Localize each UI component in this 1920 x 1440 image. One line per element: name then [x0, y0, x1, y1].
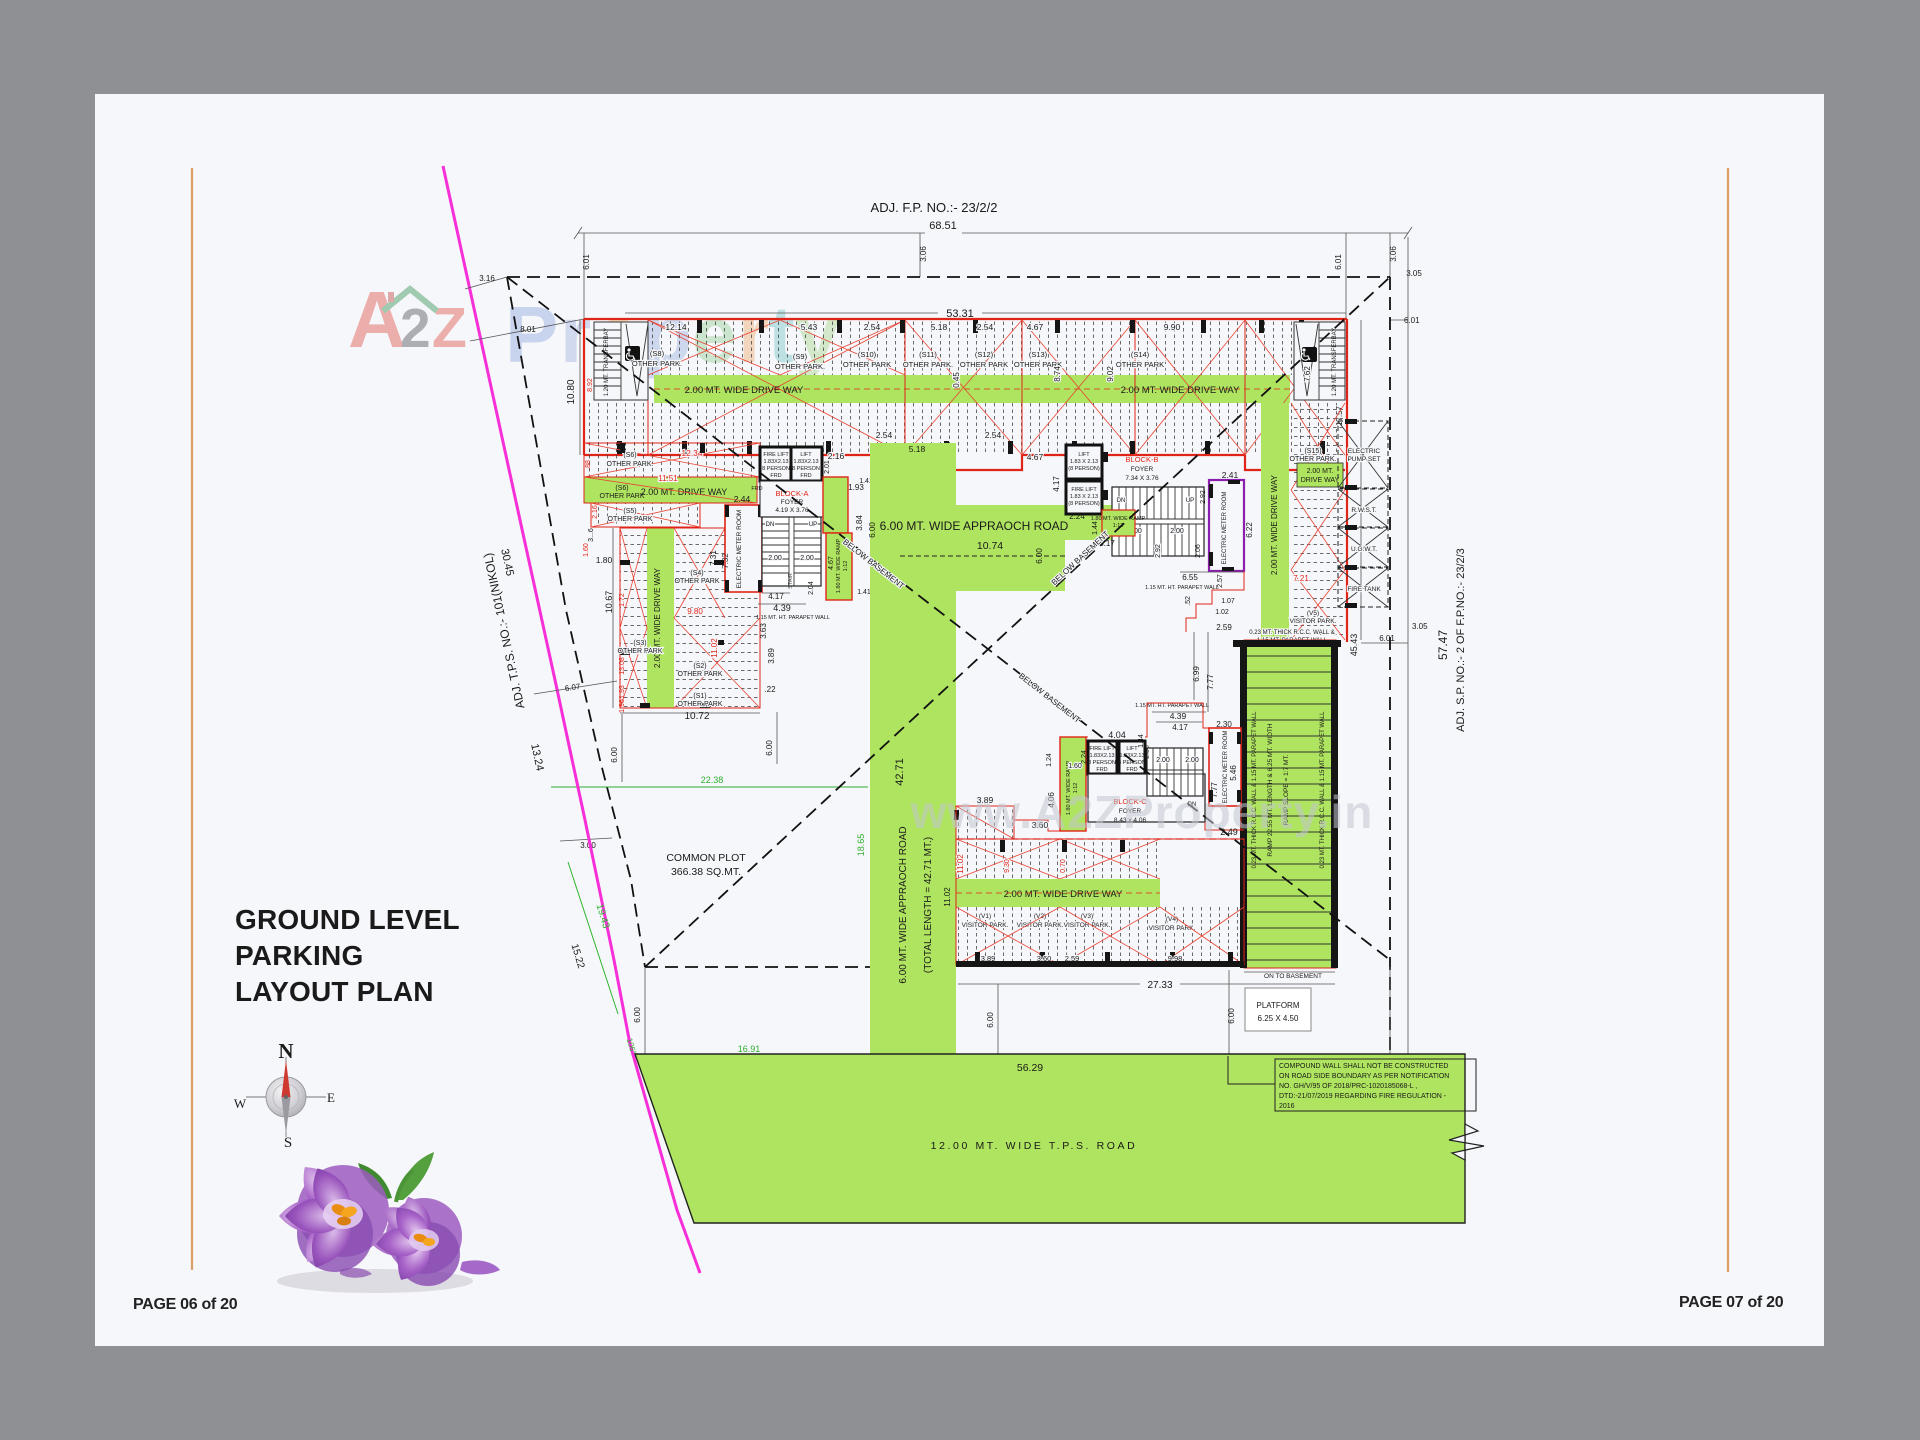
svg-text:9.02: 9.02: [1106, 366, 1115, 382]
svg-text:56.29: 56.29: [1017, 1062, 1043, 1074]
svg-text:VISITOR PARK.: VISITOR PARK.: [1017, 922, 1064, 929]
svg-text:3.05: 3.05: [1406, 269, 1422, 278]
svg-text:3.06: 3.06: [919, 246, 928, 262]
svg-text:LIFT: LIFT: [1078, 452, 1090, 458]
svg-text:9.30: 9.30: [1004, 859, 1011, 873]
svg-text:3.16: 3.16: [479, 274, 495, 283]
svg-text:6.00: 6.00: [986, 1012, 995, 1028]
svg-text:6.00: 6.00: [1035, 548, 1044, 564]
svg-text:(V2): (V2): [1034, 913, 1046, 920]
svg-text:8.92: 8.92: [587, 378, 594, 392]
svg-text:GROUND LEVEL: GROUND LEVEL: [235, 904, 460, 935]
svg-text:2.00: 2.00: [1185, 757, 1199, 764]
svg-text:1.83X2.13: 1.83X2.13: [793, 459, 818, 465]
svg-text:5.46: 5.46: [1229, 765, 1238, 781]
svg-text:2.16: 2.16: [592, 505, 599, 519]
svg-text:8.01: 8.01: [520, 325, 536, 334]
svg-text:1.15 MT. HT. PARAPET WALL: 1.15 MT. HT. PARAPET WALL: [1135, 703, 1209, 709]
svg-text:(S9): (S9): [793, 352, 808, 361]
svg-text:2.54: 2.54: [985, 430, 1002, 440]
svg-text:www.A2ZProperty.in: www.A2ZProperty.in: [910, 786, 1374, 838]
svg-text:FRD: FRD: [770, 473, 781, 479]
svg-text:NO. GH/V/95 OF 2018/PRC-102018: NO. GH/V/95 OF 2018/PRC-1020185068-L ,: [1279, 1083, 1417, 1090]
svg-text:4.67: 4.67: [828, 556, 835, 570]
svg-text:2.06: 2.06: [1195, 544, 1202, 558]
svg-text:(S4): (S4): [690, 570, 703, 577]
svg-text:3.05: 3.05: [1412, 622, 1428, 631]
svg-text:2.92: 2.92: [1155, 544, 1162, 558]
svg-text:FOYER: FOYER: [781, 499, 804, 506]
svg-text:6.00 MT. WIDE APPRAOCH ROAD: 6.00 MT. WIDE APPRAOCH ROAD: [880, 519, 1069, 533]
svg-text:6.00: 6.00: [633, 1007, 642, 1023]
svg-text:1.83X2.13: 1.83X2.13: [1089, 753, 1114, 759]
svg-text:2.59: 2.59: [1216, 623, 1232, 632]
svg-text:4.04: 4.04: [1108, 730, 1126, 740]
svg-text:1.72: 1.72: [619, 593, 626, 607]
svg-text:1.02: 1.02: [1215, 609, 1229, 616]
svg-text:FRD: FRD: [1126, 767, 1137, 773]
svg-text:1.83X2.13: 1.83X2.13: [763, 459, 788, 465]
svg-text:1.15 MT. HT. PARAPET WALL: 1.15 MT. HT. PARAPET WALL: [756, 615, 830, 621]
svg-text:0.23 MT. THICK R.C.C. WALL &: 0.23 MT. THICK R.C.C. WALL &: [1249, 630, 1334, 636]
svg-text:4.17: 4.17: [1172, 723, 1188, 732]
svg-text:68.51: 68.51: [929, 220, 957, 232]
svg-text:5.18: 5.18: [931, 322, 948, 332]
svg-text:8 PERSON: 8 PERSON: [762, 466, 790, 472]
svg-text:OTHER PARK: OTHER PARK: [678, 671, 723, 678]
svg-text:12.34: 12.34: [681, 448, 703, 458]
svg-text:6.01: 6.01: [1379, 634, 1395, 643]
svg-text:S: S: [284, 1135, 292, 1151]
svg-text:7.21: 7.21: [1293, 574, 1309, 583]
svg-text:OTHER PARK.: OTHER PARK.: [903, 360, 953, 369]
svg-text:2.00: 2.00: [800, 555, 814, 562]
svg-text:6.55: 6.55: [1182, 573, 1198, 582]
svg-text:2.06: 2.06: [1144, 745, 1151, 759]
svg-text:8 PERSON: 8 PERSON: [1088, 760, 1116, 766]
svg-text:(S3): (S3): [633, 640, 646, 647]
svg-text:1.83 X 2.13: 1.83 X 2.13: [1070, 459, 1098, 465]
svg-text:6.22: 6.22: [1245, 522, 1254, 538]
svg-text:16.91: 16.91: [738, 1044, 761, 1054]
svg-text:ELECTRIC METER ROOM: ELECTRIC METER ROOM: [1222, 492, 1228, 565]
svg-text:2.54: 2.54: [864, 322, 881, 332]
svg-text:10.74: 10.74: [977, 540, 1003, 552]
svg-text:1.20 MT. TRANSFERBAY: 1.20 MT. TRANSFERBAY: [1332, 328, 1338, 396]
svg-text:DTD:-21/07/2019 REGARDING FIRE: DTD:-21/07/2019 REGARDING FIRE REGULATIO…: [1279, 1093, 1447, 1100]
svg-text:(S6): (S6): [615, 485, 628, 492]
svg-text:3.06: 3.06: [1389, 246, 1398, 262]
svg-text:1.80 MT. WIDE RAMP: 1.80 MT. WIDE RAMP: [1091, 516, 1146, 522]
svg-text:1.83X2.13: 1.83X2.13: [1119, 753, 1144, 759]
svg-text:(8 PERSON): (8 PERSON): [1068, 501, 1100, 507]
svg-text:2.00 MT. WIDE DRIVE WAY: 2.00 MT. WIDE DRIVE WAY: [1121, 385, 1240, 396]
svg-text:1:12: 1:12: [843, 561, 849, 572]
svg-text:2.01: 2.01: [824, 460, 831, 474]
svg-text:OTHER PARK: OTHER PARK: [600, 493, 645, 500]
svg-text:1.24: 1.24: [1046, 753, 1053, 767]
svg-text:R.W.S.T.: R.W.S.T.: [1351, 507, 1376, 514]
svg-text:ADJ. S.P. NO.:- 2 OF F.P.NO.:-: ADJ. S.P. NO.:- 2 OF F.P.NO.:- 23/2/3: [1455, 548, 1467, 732]
svg-text:9.80: 9.80: [687, 607, 703, 616]
svg-text:VISITOR PARK.: VISITOR PARK.: [1290, 618, 1337, 625]
svg-text:10.80: 10.80: [566, 379, 577, 404]
svg-text:(S8): (S8): [650, 349, 665, 358]
svg-text:PARKING: PARKING: [235, 940, 363, 971]
svg-text:ELECTRIC: ELECTRIC: [1348, 448, 1380, 455]
svg-text:Z: Z: [432, 296, 467, 360]
svg-text:8.74: 8.74: [1053, 366, 1062, 382]
svg-text:2.00 MT. WIDE DRIVE WAY: 2.00 MT. WIDE DRIVE WAY: [1270, 474, 1279, 575]
svg-text:DN: DN: [766, 522, 775, 528]
svg-text:FRD: FRD: [1096, 767, 1107, 773]
svg-text:(S2): (S2): [693, 663, 706, 670]
svg-text:1.15 MT. HT. PARAPET WALL: 1.15 MT. HT. PARAPET WALL: [1145, 585, 1219, 591]
svg-text:4.39: 4.39: [1170, 711, 1187, 721]
svg-text:(S14): (S14): [1131, 350, 1150, 359]
svg-text:2016: 2016: [1279, 1103, 1295, 1110]
svg-text:2.04: 2.04: [808, 581, 815, 595]
svg-text:.52: .52: [1185, 596, 1192, 606]
svg-text:11.02: 11.02: [710, 638, 719, 658]
svg-text:2.57: 2.57: [1217, 574, 1224, 588]
svg-text:57.47: 57.47: [1436, 630, 1450, 660]
svg-text:(V1): (V1): [979, 913, 991, 920]
svg-text:11.02: 11.02: [943, 887, 952, 907]
svg-text:OTHER PARK: OTHER PARK: [675, 578, 720, 585]
svg-text:(V5): (V5): [1307, 610, 1319, 617]
svg-text:(S5): (S5): [623, 508, 636, 515]
svg-text:1.07: 1.07: [1221, 598, 1235, 605]
svg-text:5.18: 5.18: [909, 444, 926, 454]
svg-text:7.32: 7.32: [721, 553, 730, 569]
svg-text:1.41: 1.41: [857, 589, 871, 596]
svg-text:366.38 SQ.MT.: 366.38 SQ.MT.: [671, 866, 741, 878]
svg-text:FRD: FRD: [751, 486, 762, 492]
svg-text:3.63: 3.63: [759, 623, 768, 639]
svg-text:4.17: 4.17: [768, 592, 784, 601]
svg-text:1.83 X 2.13: 1.83 X 2.13: [1070, 494, 1098, 500]
svg-text:4.39: 4.39: [773, 603, 791, 613]
svg-text:6.01: 6.01: [1334, 254, 1343, 270]
svg-text:PLATFORM: PLATFORM: [1257, 1001, 1300, 1010]
svg-text:DN: DN: [1117, 498, 1126, 504]
svg-text:OTHER PARK: OTHER PARK: [608, 516, 653, 523]
svg-text:(V3): (V3): [1081, 913, 1093, 920]
svg-text:BLOCK-B: BLOCK-B: [1126, 455, 1159, 464]
svg-text:3.84: 3.84: [855, 515, 864, 531]
svg-text:COMPOUND WALL SHALL NOT BE CON: COMPOUND WALL SHALL NOT BE CONSTRUCTED: [1279, 1063, 1448, 1070]
svg-text:18.65: 18.65: [856, 834, 866, 857]
svg-text:.88: .88: [585, 460, 592, 470]
svg-text:2.54: 2.54: [977, 322, 994, 332]
svg-text:6.01: 6.01: [1404, 316, 1420, 325]
svg-text:2.00: 2.00: [1170, 528, 1184, 535]
svg-text:ADJ. F.P. NO.:- 23/2/2: ADJ. F.P. NO.:- 23/2/2: [871, 200, 998, 215]
svg-text:2.00: 2.00: [768, 555, 782, 562]
svg-text:10.67: 10.67: [604, 591, 614, 614]
svg-text:(V4): (V4): [1166, 916, 1178, 923]
svg-text:6.00 MT. WIDE APPRAOCH ROAD: 6.00 MT. WIDE APPRAOCH ROAD: [898, 826, 909, 983]
svg-text:7.77: 7.77: [1206, 674, 1215, 690]
svg-text:6.01: 6.01: [582, 254, 591, 270]
svg-text:FIRE LIFT: FIRE LIFT: [1071, 487, 1097, 493]
svg-text:r: r: [560, 290, 591, 379]
svg-text:OTHER PARK.: OTHER PARK.: [1290, 456, 1337, 463]
svg-text:(S12): (S12): [975, 350, 994, 359]
svg-text:LIFT: LIFT: [800, 452, 812, 458]
svg-text:1.60: 1.60: [1068, 763, 1082, 770]
svg-text:6.25 X 4.50: 6.25 X 4.50: [1258, 1014, 1299, 1023]
svg-text:1.80 MT. WIDE RAMP: 1.80 MT. WIDE RAMP: [836, 538, 842, 593]
svg-text:7.62: 7.62: [1303, 366, 1312, 382]
svg-text:FOYER: FOYER: [1131, 466, 1154, 473]
svg-text:4.67: 4.67: [1027, 452, 1044, 462]
svg-text:ON TO BASEMENT: ON TO BASEMENT: [1264, 973, 1322, 980]
svg-text:8 PERSON: 8 PERSON: [792, 466, 820, 472]
svg-text:2.54: 2.54: [876, 430, 893, 440]
svg-text:4.67: 4.67: [1027, 322, 1044, 332]
svg-text:1.80: 1.80: [596, 555, 613, 565]
svg-text:1.96: 1.96: [619, 699, 626, 713]
svg-text:OTHER PARK: OTHER PARK: [678, 701, 723, 708]
svg-text:(S10): (S10): [858, 350, 877, 359]
svg-text:2.44: 2.44: [734, 494, 751, 504]
svg-text:ON ROAD SIDE BOUNDARY AS PER N: ON ROAD SIDE BOUNDARY AS PER NOTIFICATIO…: [1279, 1073, 1449, 1080]
svg-text:3...6: 3...6: [588, 528, 595, 542]
svg-text:VISITOR PARK.: VISITOR PARK.: [1149, 925, 1196, 932]
svg-text:6.99: 6.99: [1192, 666, 1201, 682]
svg-text:0.45: 0.45: [952, 372, 961, 388]
svg-text:OTHER PARK.: OTHER PARK.: [775, 362, 825, 371]
svg-text:6.00: 6.00: [765, 740, 774, 756]
svg-text:45.43: 45.43: [1349, 634, 1359, 657]
svg-text:(S13): (S13): [1029, 350, 1048, 359]
svg-text:BLOCK-A: BLOCK-A: [776, 489, 809, 498]
svg-text:FIRE LIFT: FIRE LIFT: [763, 452, 789, 458]
svg-text:(TOTAL LENGTH = 42.71 MT.): (TOTAL LENGTH = 42.71 MT.): [923, 837, 934, 973]
svg-text:(8 PERSON): (8 PERSON): [1068, 466, 1100, 472]
svg-text:PUMP SET: PUMP SET: [1347, 456, 1380, 463]
svg-text:12.14: 12.14: [665, 322, 687, 332]
svg-text:3.89: 3.89: [767, 648, 776, 664]
svg-text:6.00: 6.00: [1227, 1008, 1236, 1024]
svg-text:7.31: 7.31: [709, 550, 718, 566]
svg-text:7.34 X 3.76: 7.34 X 3.76: [1125, 475, 1159, 482]
svg-text:.22: .22: [764, 685, 776, 694]
svg-text:COMMON PLOT: COMMON PLOT: [666, 852, 746, 864]
svg-text:W: W: [234, 1096, 247, 1111]
svg-text:2.00 MT.: 2.00 MT.: [1307, 468, 1334, 475]
svg-text:2.41: 2.41: [1222, 470, 1239, 480]
svg-text:UP: UP: [1186, 498, 1194, 504]
svg-text:A: A: [348, 275, 406, 364]
svg-text:42.71: 42.71: [894, 758, 906, 786]
svg-text:UP: UP: [809, 522, 817, 528]
svg-text:PAGE 06 of 20: PAGE 06 of 20: [133, 1296, 238, 1313]
svg-text:1.60: 1.60: [583, 543, 590, 557]
svg-text:ELECTRIC METER ROOM: ELECTRIC METER ROOM: [736, 510, 743, 589]
svg-text:FIRE LIFT: FIRE LIFT: [1089, 746, 1115, 752]
svg-text:LIFT: LIFT: [1126, 746, 1138, 752]
svg-text:27.33: 27.33: [1147, 980, 1172, 991]
svg-text:0.70: 0.70: [1060, 859, 1067, 873]
svg-text:(S15): (S15): [1304, 448, 1321, 455]
svg-text:13.08: 13.08: [619, 657, 626, 675]
svg-text:OTHER PARK: OTHER PARK: [960, 360, 1008, 369]
svg-text:11.02: 11.02: [956, 854, 965, 874]
svg-text:PAGE 07 of 20: PAGE 07 of 20: [1679, 1294, 1784, 1311]
svg-text:2.92: 2.92: [1200, 490, 1207, 504]
svg-text:FRD: FRD: [800, 473, 811, 479]
svg-text:2.00: 2.00: [1156, 757, 1170, 764]
svg-text:12.00 MT. WIDE T.P.S. ROAD: 12.00 MT. WIDE T.P.S. ROAD: [931, 1140, 1138, 1152]
svg-text:U.G.W.T.: U.G.W.T.: [1351, 546, 1377, 553]
svg-text:N: N: [278, 1039, 293, 1063]
svg-text:LAYOUT PLAN: LAYOUT PLAN: [235, 976, 434, 1007]
svg-text:4.19 X 3.76: 4.19 X 3.76: [775, 507, 809, 514]
svg-text:2.00 MT. WIDE DRIVE WAY: 2.00 MT. WIDE DRIVE WAY: [1004, 889, 1123, 900]
svg-text:6.00: 6.00: [610, 747, 619, 763]
svg-text:OTHER PARK.: OTHER PARK.: [632, 359, 682, 368]
svg-text:OTHER PARK: OTHER PARK: [843, 360, 891, 369]
svg-text:P: P: [505, 290, 558, 379]
svg-text:STAIR: STAIR: [788, 573, 794, 589]
svg-text:OTHER PARK: OTHER PARK: [1116, 360, 1164, 369]
svg-text:5.43: 5.43: [801, 322, 818, 332]
svg-text:2.00 MT. WIDE DRIVE WAY: 2.00 MT. WIDE DRIVE WAY: [685, 385, 804, 396]
svg-text:2.24: 2.24: [1069, 512, 1085, 521]
svg-text:FIRE TANK: FIRE TANK: [1347, 586, 1381, 593]
svg-text:6.00: 6.00: [868, 522, 877, 538]
svg-text:E: E: [327, 1090, 335, 1105]
svg-text:OTHER PARK.: OTHER PARK.: [607, 461, 654, 468]
svg-text:11.51: 11.51: [658, 474, 678, 483]
svg-text:1.93: 1.93: [619, 685, 626, 699]
svg-text:(S1): (S1): [693, 693, 706, 700]
svg-text:9.90: 9.90: [1164, 322, 1181, 332]
svg-text:1.20 MT. TRANSFERBAY: 1.20 MT. TRANSFERBAY: [604, 328, 610, 396]
svg-text:2: 2: [400, 297, 431, 359]
svg-text:4.17: 4.17: [1052, 476, 1061, 492]
svg-text:OTHER PARK: OTHER PARK: [618, 648, 663, 655]
svg-text:1.44: 1.44: [1092, 521, 1099, 535]
svg-text:(S11): (S11): [919, 350, 937, 359]
svg-text:(S6): (S6): [623, 452, 636, 459]
svg-text:DRIVE WAY: DRIVE WAY: [1301, 477, 1340, 484]
svg-text:22.38: 22.38: [701, 775, 724, 785]
